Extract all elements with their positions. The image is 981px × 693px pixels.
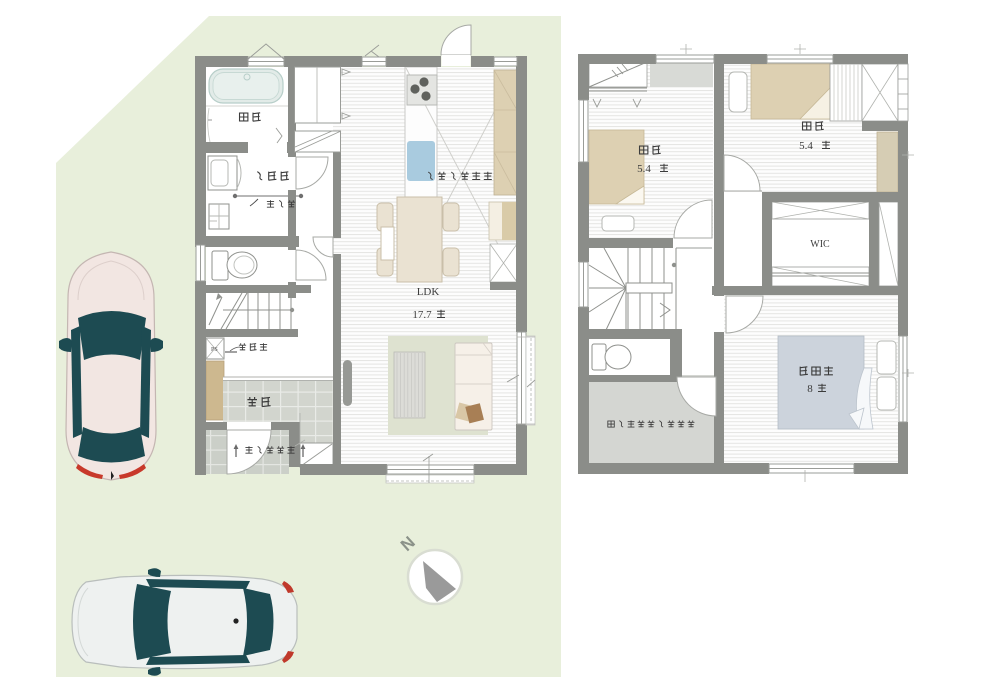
svg-text:LDK: LDK	[417, 286, 440, 298]
svg-text:WIC: WIC	[810, 239, 830, 250]
svg-text:PS: PS	[211, 347, 218, 353]
svg-text:5.4: 5.4	[637, 163, 651, 175]
svg-text:8: 8	[807, 383, 813, 395]
svg-text:5.4: 5.4	[799, 140, 813, 152]
svg-text:17.7: 17.7	[412, 309, 432, 321]
